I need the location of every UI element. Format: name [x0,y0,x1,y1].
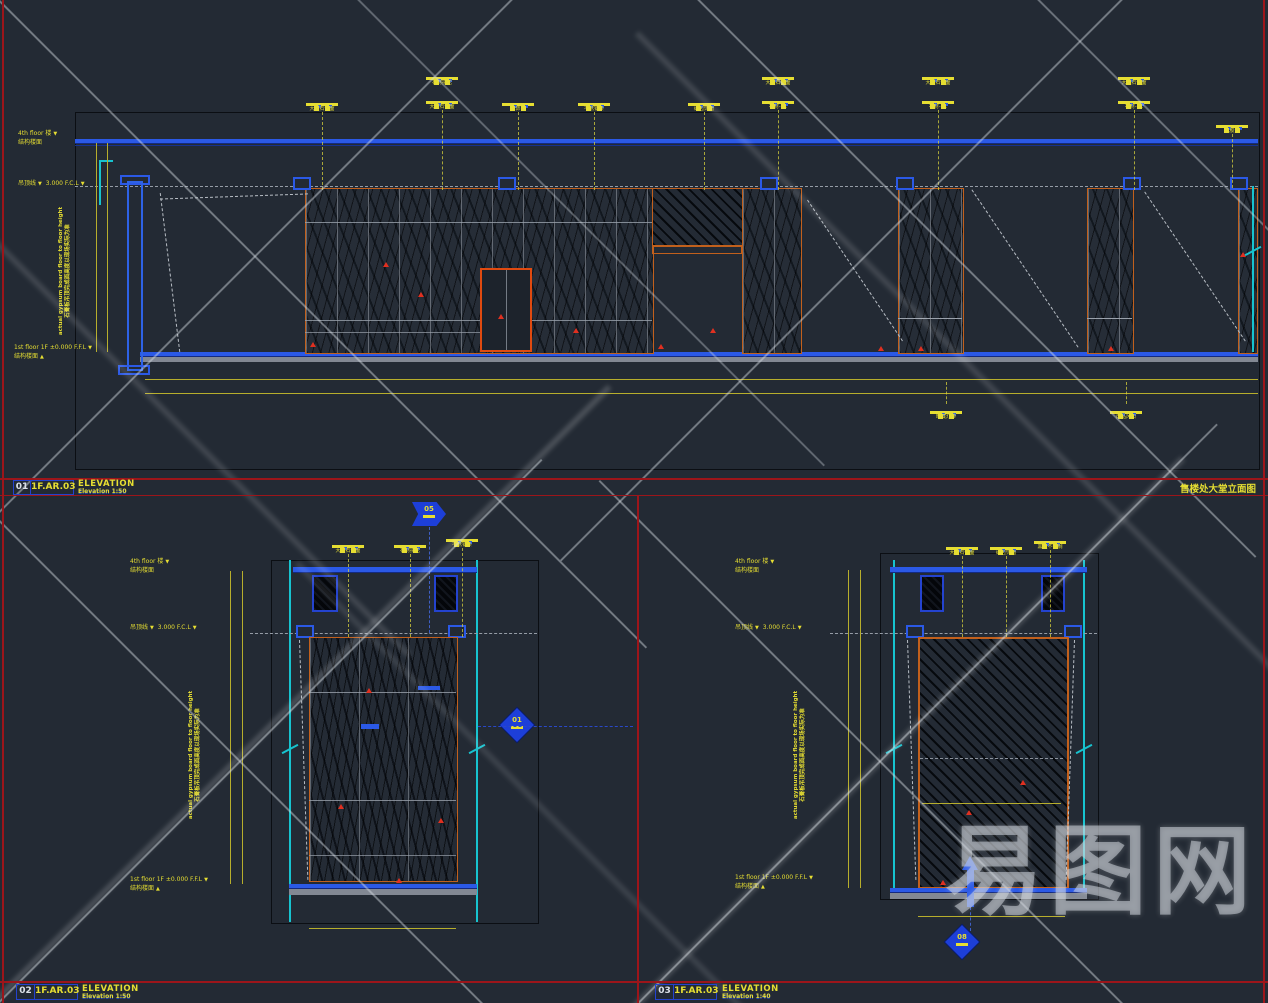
gypsum-note-en: actual gypsum board floor to floor heigh… [793,670,800,840]
column-break-mark [99,160,101,205]
viewport-number-box: 01 [13,480,31,495]
red-marker [498,314,504,319]
level-slab-en: 4th floor 楼 [735,558,768,565]
down-triangle-icon: ▼ [53,131,57,137]
ceiling-clip [498,177,516,190]
red-marker [1020,780,1026,785]
red-marker [338,804,344,809]
tag-squares-icon [760,94,796,100]
tag-leader-line [410,554,411,637]
up-triangle-icon: ▲ [40,354,44,360]
tag-leader-line [1134,110,1135,190]
material-tag: 不锈钢条 [576,96,612,112]
red-marker [396,878,402,883]
gypsum-note-cn: 石膏板吊顶完成面高度以现场实际为准 [195,670,202,840]
br-height-dim-line [860,570,861,888]
material-tag: 大理石饰面 [304,96,340,112]
floor-label-cn: 结构楼面 [130,885,154,892]
material-tag: 石材-01 [760,94,796,110]
tag-squares-icon [1214,118,1250,124]
down-triangle-icon: ▼ [88,345,92,351]
panel-divider [637,496,639,1003]
tag-squares-icon [920,94,956,100]
height-dim-line [107,143,108,352]
material-tag: 石材-01 [920,94,956,110]
material-tag: 石材拼花 [392,538,428,554]
br-level-label-slab: 4th floor 楼▼ 结构楼面 [735,558,776,574]
titlebar-bottom-line [0,981,1268,983]
drawing-title-cn: 售楼处大堂立面图 [1180,481,1256,495]
red-marker [1240,252,1246,257]
section-marker-05: 05 [412,502,446,526]
ceiling-clip [896,177,914,190]
tag-squares-icon [304,96,340,102]
bl-level-label-floor: 1st floor 1F ±0.000 F.F.L▼ 结构楼面▲ [130,876,210,893]
section-marker-01-label: 01 [505,713,529,737]
tag-leader-line [442,110,443,190]
floor-label-en: 1st floor 1F [130,876,164,883]
floor-label-cn: 结构楼面 [14,353,38,360]
red-marker [438,818,444,823]
bl-marble-wall [309,637,458,882]
bl-marker-leader [429,527,430,633]
lintel-panel [652,188,744,246]
tag-leader-line [462,548,463,637]
height-dim-line [96,143,97,352]
ceiling-level-value: 3.000 F.C.L [763,624,796,631]
red-marker [418,292,424,297]
section-marker-08-number: 08 [957,933,967,941]
sheet-border-left [2,0,4,1003]
viewport-number-box: 03 [655,984,674,1000]
tag-squares-icon [944,540,980,546]
down-triangle-icon: ▼ [81,181,85,187]
tag-leader-line [1006,556,1007,637]
tag-leader-line [594,112,595,190]
bl-blue-bar [361,724,379,729]
gypsum-note: actual gypsum board floor to floor heigh… [58,186,72,356]
ceiling-level-value: 3.000 F.C.L [158,624,191,631]
column-break-mark-h [99,160,113,162]
material-tag: 硬包饰面 [988,540,1024,556]
bl-wall-joint [309,855,456,856]
br-ceiling-line [830,633,1097,634]
wall-pier-edge [1238,188,1258,354]
red-marker [366,688,372,693]
bl-gypsum-note: actual gypsum board floor to floor heigh… [188,670,202,840]
red-marker [918,346,924,351]
ceiling-label-cn: 吊顶线 [130,624,148,631]
sheet-code: 1F.AR.03 [35,986,80,996]
ceiling-clip [293,177,311,190]
section-marker-05-number: 05 [424,505,434,513]
door-leaf-split [506,270,507,350]
tag-squares-icon [576,96,612,102]
red-marker [658,344,664,349]
tag-leader-line [946,382,947,404]
gypsum-note-en: actual gypsum board floor to floor heigh… [188,670,195,840]
br-gypsum-note: actual gypsum board floor to floor heigh… [793,670,807,840]
drawing-scale: Elevation 1:50 [82,993,131,1000]
break-line-right [1252,186,1254,352]
bl-bottom-dim-line [309,928,456,929]
red-marker [573,328,579,333]
dim-chain-1 [145,379,1258,380]
section-marker-ref-bar [423,515,435,518]
bl-floor-line [289,884,477,888]
tag-squares-icon [1108,404,1144,410]
gypsum-note-cn: 石膏板吊顶完成面高度以现场实际为准 [800,670,807,840]
tag-squares-icon [920,70,956,76]
down-triangle-icon: ▼ [770,559,774,565]
material-tag-label: 大理石饰面 [920,80,956,86]
wall-joint [305,320,652,321]
level-slab-cn: 结构楼面 [130,567,154,574]
floor-level-value: ±0.000 F.F.L [771,874,807,881]
tag-squares-icon [330,538,366,544]
top-drawing-frame [75,112,1260,470]
material-tag: 成品风口 [1108,404,1144,420]
tag-leader-line [1232,134,1233,188]
titlebar1-bottom-line [0,495,1268,496]
sheet-code-box: 1F.AR.03 [30,480,74,495]
drawing-scale: Elevation 1:40 [722,993,771,1000]
level-label-ceiling: 吊顶线▼ 3.000 F.C.L▼ [18,180,87,189]
red-marker [710,328,716,333]
pier-joint [1087,318,1132,319]
tag-leader-line [962,556,963,637]
tag-squares-icon [760,70,796,76]
br-slab-line [890,567,1087,572]
bl-floor-band [289,889,477,895]
sheet-code: 1F.AR.03 [674,986,719,996]
tag-leader-line [322,112,323,190]
sheet-border-right [1263,0,1265,1003]
viewport-number: 03 [658,986,671,996]
bl-wall-joint [309,800,456,801]
bl-break-left [289,560,291,922]
tag-leader-line [704,112,705,190]
down-triangle-icon: ▼ [809,875,813,881]
tag-squares-icon [928,404,964,410]
level-slab-cn: 结构楼面 [735,567,759,574]
wall-pier [1087,188,1134,354]
drawing-scale: Elevation 1:50 [78,488,127,495]
br-break-left [893,560,895,898]
sheet-code-box: 1F.AR.03 [34,984,78,1000]
down-triangle-icon: ▼ [193,625,197,631]
down-triangle-icon: ▼ [798,625,802,631]
level-slab-cn: 结构楼面 [18,139,42,146]
br-panel-midline [920,758,1063,759]
viewport-number: 02 [19,986,32,996]
down-triangle-icon: ▼ [165,559,169,565]
section-marker-ref-bar [956,943,968,946]
sheet-code-box: 1F.AR.03 [673,984,717,1000]
material-tag: 大理石饰面 [944,540,980,556]
titlebar1-top-line [0,478,1268,480]
gypsum-note-en: actual gypsum board floor to floor heigh… [58,186,65,356]
bl-height-dim-line [242,571,243,884]
lintel-band [652,246,742,254]
tag-squares-icon [500,96,536,102]
bl-height-dim-line [230,571,231,884]
material-tag: 大理石饰面 [920,70,956,86]
material-tag-label: 暗藏灯带 [928,414,964,420]
down-triangle-icon: ▼ [38,181,42,187]
floor-level-value: ±0.000 F.F.L [166,876,202,883]
floor-label-en: 1st floor 1F [14,344,48,351]
material-tag: 大理石饰面 [330,538,366,554]
slab-line-thin [75,145,1258,146]
down-triangle-icon: ▼ [204,877,208,883]
red-marker [310,342,316,347]
floor-slab-band [140,357,1258,362]
viewport-number-box: 02 [16,984,35,1000]
viewport-number: 01 [16,482,29,492]
tag-squares-icon [1032,534,1068,540]
red-marker [878,346,884,351]
ceiling-line [75,186,1258,187]
tag-leader-line [1126,382,1127,404]
br-ceiling-opening [920,575,944,612]
material-tag: 暗藏灯带 [928,404,964,420]
pier-joint [898,318,962,319]
gypsum-note-cn: 石膏板吊顶完成面高度以现场实际为准 [65,186,72,356]
ceiling-clip [1123,177,1141,190]
level-slab-en: 4th floor 楼 [18,130,51,137]
red-marker [1108,346,1114,351]
level-label-slab: 4th floor 楼▼ 结构楼面 [18,130,59,146]
tag-leader-line [938,110,939,190]
up-triangle-icon: ▲ [156,886,160,892]
bl-ceiling-opening [434,575,458,612]
slab-line [75,139,1258,143]
down-triangle-icon: ▼ [755,625,759,631]
tag-squares-icon [988,540,1024,546]
section-marker-01-number: 01 [512,716,522,724]
red-marker [383,262,389,267]
wall-joint [305,222,652,223]
material-tag: 黑钛不锈钢 [1032,534,1068,550]
ceiling-label-cn: 吊顶线 [18,180,36,187]
tag-squares-icon [1116,70,1152,76]
bl-level-label-ceiling: 吊顶线▼ 3.000 F.C.L▼ [130,624,199,633]
level-slab-en: 4th floor 楼 [130,558,163,565]
level-label-floor: 1st floor 1F ±0.000 F.F.L▼ 结构楼面▲ [14,344,94,361]
structural-column [127,181,143,371]
sheet-code: 1F.AR.03 [31,482,76,492]
bl-marker-dash-line [478,726,633,727]
bl-level-label-slab: 4th floor 楼▼ 结构楼面 [130,558,171,574]
down-triangle-icon: ▼ [150,625,154,631]
bl-wall-joint [309,692,456,693]
tag-leader-line [518,112,519,190]
yitu-logo-watermark: 易图网 [945,792,1257,934]
material-tag: 木饰面 [500,96,536,112]
tag-squares-icon [392,538,428,544]
cad-sheet: 4th floor 楼▼ 结构楼面 吊顶线▼ 3.000 F.C.L▼ 1st … [0,0,1268,1003]
material-tag: 乳胶漆 [1214,118,1250,134]
